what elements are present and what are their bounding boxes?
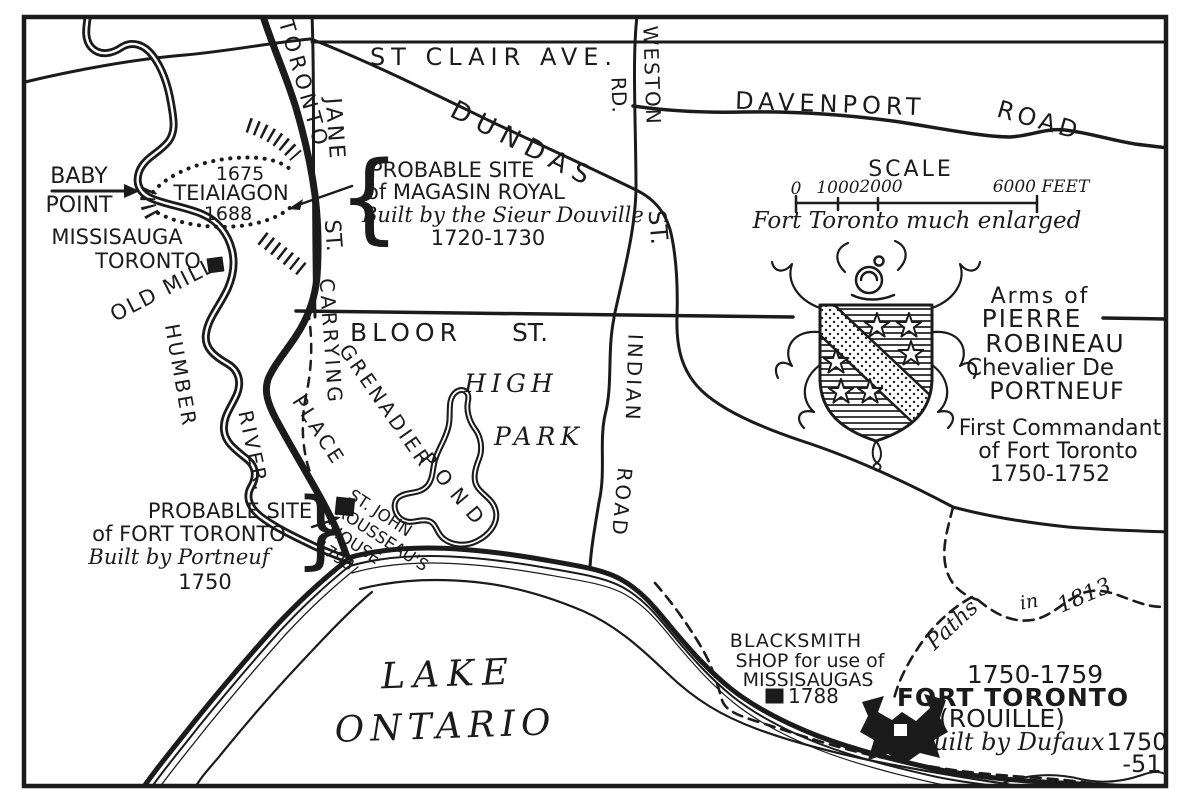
label-fort-site-line3: Built by Portneuf xyxy=(87,545,272,569)
label-arms-commandant: First Commandant xyxy=(959,416,1162,441)
label-blacksmith-line1: BLACKSMITH xyxy=(730,630,862,652)
label-magasin-line4: 1720-1730 xyxy=(431,226,545,250)
label-arms-portneuf: PORTNEUF xyxy=(989,377,1124,405)
scale-6000: 6000 FEET xyxy=(993,177,1091,197)
label-bloor-st: ST. xyxy=(512,318,548,347)
label-magasin-line2: of MAGASIN ROYAL xyxy=(366,180,565,204)
label-dundas-st: ST. xyxy=(643,209,674,246)
label-rouille-51: -51 xyxy=(1122,750,1161,778)
scale-2000: 2000 xyxy=(858,177,902,197)
label-arms-dates: 1750-1752 xyxy=(990,462,1110,487)
label-rouille-built-by: Built by Dufaux xyxy=(914,728,1105,756)
label-st-clair-ave: ST CLAIR AVE. xyxy=(370,43,618,71)
historical-map-page: ST CLAIR AVE. DAVENPORT ROAD DUNDAS ST. … xyxy=(0,0,1200,811)
label-fort-site-line1: PROBABLE SITE xyxy=(148,499,312,523)
blacksmith-marker xyxy=(766,689,783,703)
label-ontario: ONTARIO xyxy=(334,702,557,751)
label-indian: INDIAN xyxy=(620,333,647,423)
label-arms-robineau: ROBINEAU xyxy=(985,329,1124,358)
label-teiaiagon: TEIAIAGON xyxy=(172,181,288,205)
label-paths-in: in xyxy=(1018,590,1040,615)
scale-note: Fort Toronto much enlarged xyxy=(752,208,1082,234)
label-baby: BABY xyxy=(50,164,108,189)
label-arms-of-fort: of Fort Toronto xyxy=(978,439,1137,464)
label-bloor: BLOOR xyxy=(350,318,462,347)
label-high: HIGH xyxy=(463,369,557,398)
label-lake: LAKE xyxy=(379,652,516,698)
label-teiaiagon-1688: 1688 xyxy=(204,203,252,225)
road-bloor-east-segment xyxy=(1103,318,1168,319)
label-point: POINT xyxy=(46,193,114,218)
scale-0: 0 xyxy=(791,179,802,199)
label-park: PARK xyxy=(493,422,584,451)
label-blacksmith-1788: 1788 xyxy=(788,684,839,708)
label-fort-site-line2: of FORT TORONTO xyxy=(92,522,286,546)
map-canvas: ST CLAIR AVE. DAVENPORT ROAD DUNDAS ST. … xyxy=(0,0,1200,811)
label-weston: WESTON xyxy=(638,25,665,126)
label-weston-rd: RD. xyxy=(606,77,631,113)
label-magasin-line3: Built by the Sieur Douville xyxy=(361,203,644,227)
scale-1000: 1000 xyxy=(816,178,859,198)
label-magasin-line1: PROBABLE SITE xyxy=(370,158,534,182)
label-fort-site-line4: 1750 xyxy=(178,570,231,594)
label-missisauga: MISSISAUGA xyxy=(51,225,183,249)
